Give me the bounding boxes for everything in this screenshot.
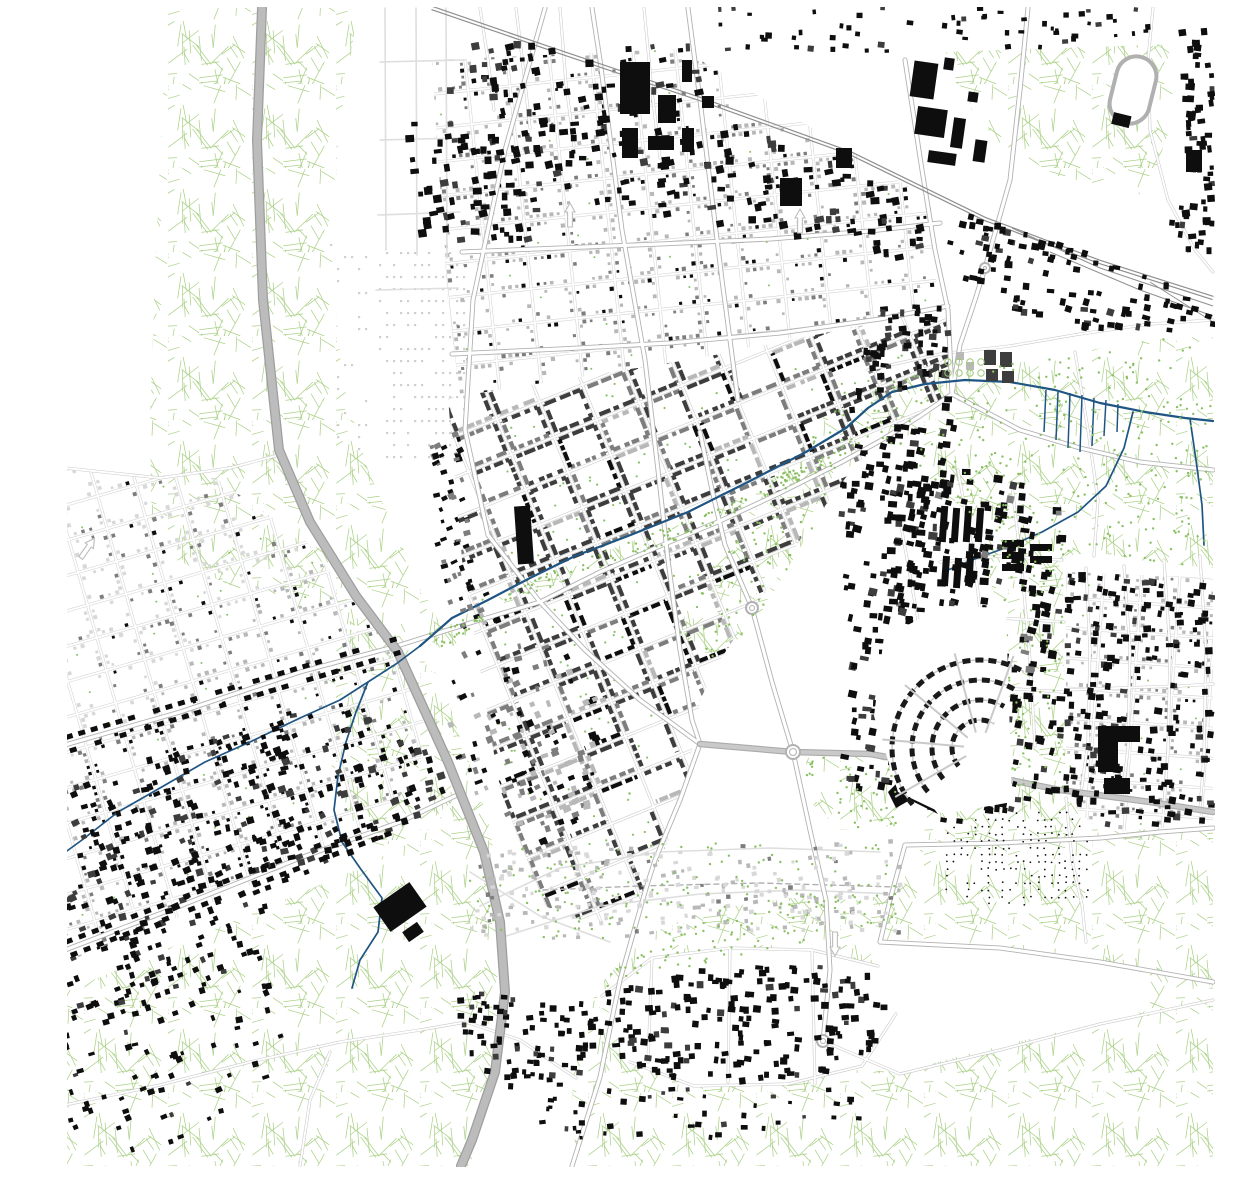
map-figure xyxy=(0,0,1257,1200)
city-plan-map xyxy=(0,0,1257,1200)
